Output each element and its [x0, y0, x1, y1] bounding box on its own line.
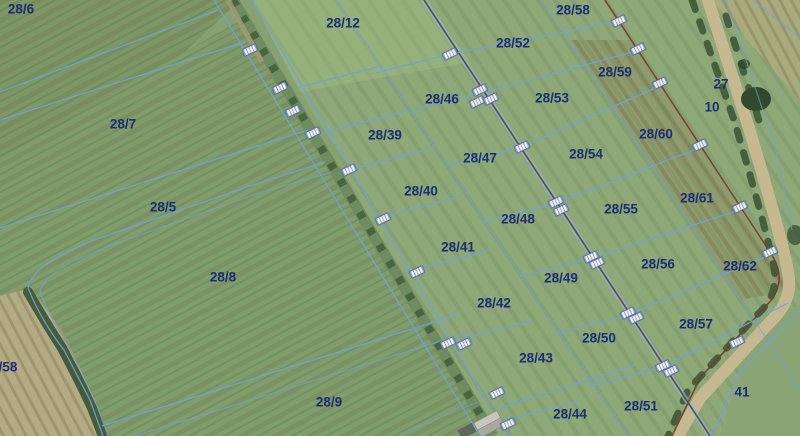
parcel-label-28-8: 28/8	[210, 270, 236, 284]
parcel-label-28-7: 28/7	[110, 117, 136, 131]
parcel-label-28-53: 28/53	[535, 91, 569, 105]
parcel-label-28-46: 28/46	[425, 92, 459, 106]
parcel-label--58: /58	[0, 360, 17, 374]
parcel-label-28-60: 28/60	[639, 127, 673, 141]
parcel-label-28-59: 28/59	[598, 65, 632, 79]
parcel-label-28-62: 28/62	[723, 259, 757, 273]
parcel-label-28-51: 28/51	[624, 399, 658, 413]
parcel-label-28-44: 28/44	[553, 407, 587, 421]
parcel-label-28-39: 28/39	[368, 128, 402, 142]
parcel-label-28-49: 28/49	[544, 271, 578, 285]
parcel-label-28-58: 28/58	[556, 3, 590, 17]
parcel-label-28-5: 28/5	[150, 200, 176, 214]
parcel-label-28-52: 28/52	[496, 36, 530, 50]
parcel-label-28-50: 28/50	[582, 331, 616, 345]
map-canvas[interactable]: 28/628/1228/5828/5228/592728/4628/531028…	[0, 0, 800, 436]
aerial-basemap	[0, 0, 800, 436]
parcel-label-28-57: 28/57	[679, 317, 713, 331]
parcel-label-28-12: 28/12	[326, 16, 360, 30]
parcel-label-28-9: 28/9	[316, 395, 342, 409]
parcel-label-28-48: 28/48	[501, 212, 535, 226]
parcel-label-28-6: 28/6	[8, 2, 34, 16]
parcel-label-28-41: 28/41	[441, 240, 475, 254]
parcel-label-28-42: 28/42	[477, 296, 511, 310]
parcel-label-28-55: 28/55	[604, 202, 638, 216]
parcel-label-28-56: 28/56	[641, 257, 675, 271]
parcel-label-28-61: 28/61	[680, 191, 714, 205]
parcel-label-28-43: 28/43	[519, 351, 553, 365]
parcel-label-41: 41	[734, 385, 749, 399]
parcel-label-28-47: 28/47	[463, 151, 497, 165]
parcel-label-28-54: 28/54	[569, 147, 603, 161]
parcel-label-28-40: 28/40	[404, 184, 438, 198]
parcel-label-27: 27	[713, 77, 728, 91]
parcel-label-10: 10	[704, 100, 719, 114]
